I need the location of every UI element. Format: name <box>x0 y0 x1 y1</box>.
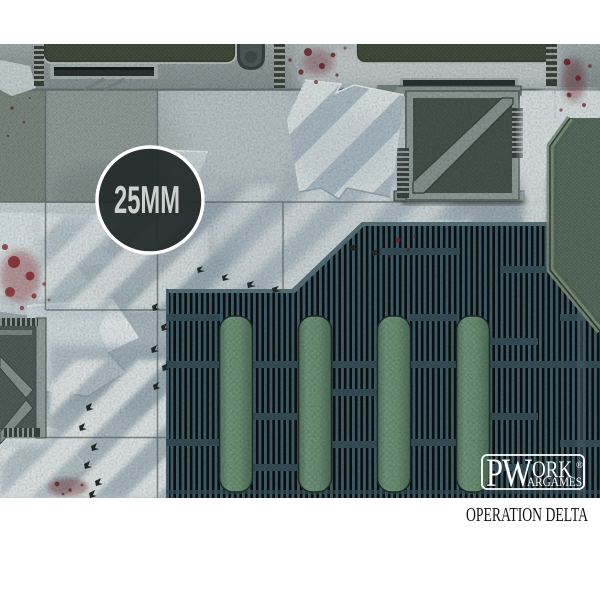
svg-text:ARGAMES: ARGAMES <box>527 474 582 489</box>
svg-text:25MM: 25MM <box>114 179 180 222</box>
svg-text:®: ® <box>576 460 583 470</box>
svg-text:OPERATION DELTA: OPERATION DELTA <box>466 504 588 526</box>
svg-text:P: P <box>486 450 503 495</box>
